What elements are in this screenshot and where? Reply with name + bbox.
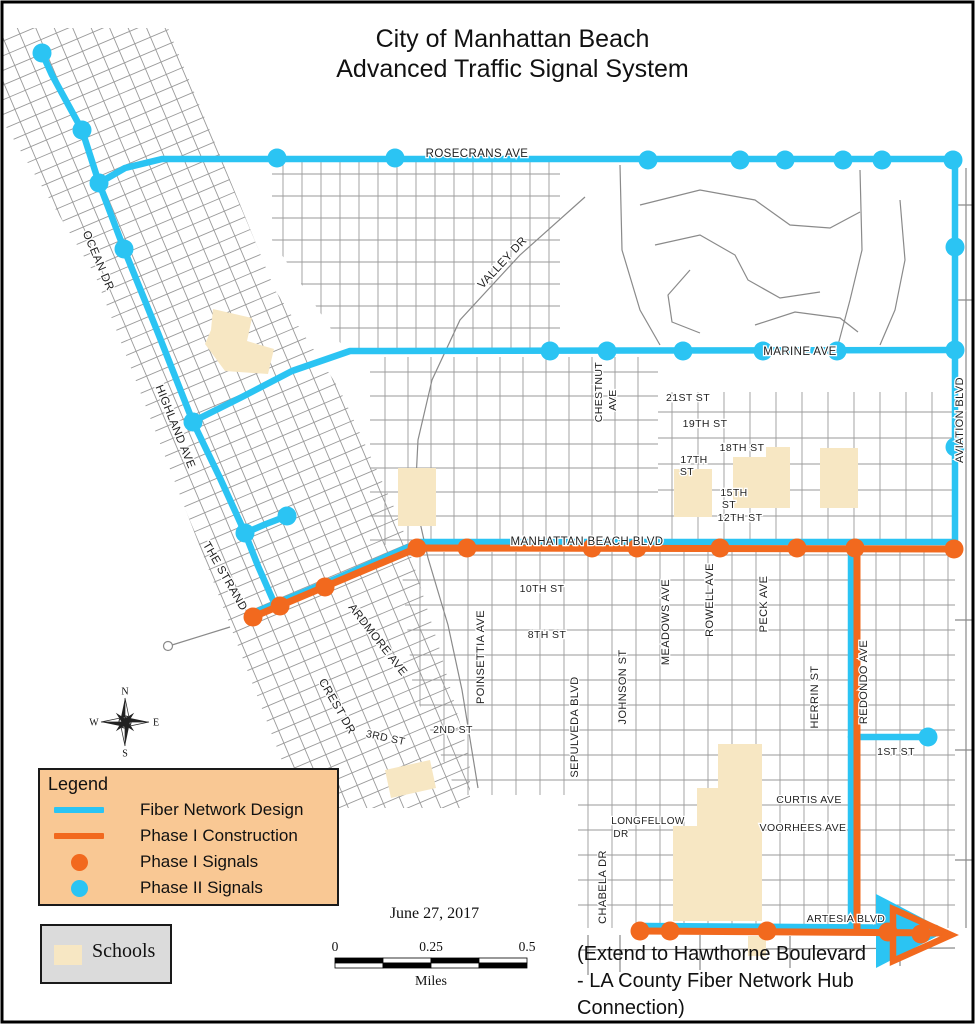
street-label: 12TH ST [718,512,763,524]
phase2-signal [184,413,203,432]
phase1-signal [846,539,865,558]
street-label: THE STRAND [200,540,249,613]
extend-note-line3: Connection) [577,995,967,1022]
map-page: ROSECRANS AVEOCEAN DRVALLEY DRMARINE AVE… [0,0,975,1024]
phase2-signal [598,342,617,361]
legend: Legend Fiber Network Design Phase I Cons… [38,768,339,906]
street-label: PECK AVE [758,576,770,633]
phase1-signal [711,539,730,558]
legend-item-fiber-network: Fiber Network Design [40,797,337,823]
school-area [385,760,436,798]
street-label: 21ST ST [666,392,710,404]
extend-note: (Extend to Hawthorne Boulevard - LA Coun… [577,941,967,1022]
phase2-signal [674,342,693,361]
phase1-signal [316,578,335,597]
street-label: CHESTNUT [593,362,605,423]
street-label: MARINE AVE [763,346,836,358]
legend-item-label: Phase I Signals [140,852,258,872]
legend-item-phase2-signals: Phase II Signals [40,875,337,901]
street-label: ROSECRANS AVE [426,148,529,160]
street-label: 15TH [720,487,747,499]
compass-letter: S [122,749,128,760]
street-label: LONGFELLOW [611,816,685,827]
phase1-line-swatch [54,833,104,839]
street-label: 3RD ST [365,728,407,748]
school-area [820,448,858,508]
scale-unit-label: Miles [415,974,447,989]
street-label: HERRIN ST [809,666,821,729]
street-label: POINSETTIA AVE [475,610,487,704]
school-area [673,744,762,921]
pier-roundhouse [164,642,173,651]
phase1-signal [458,539,477,558]
phase2-signal [90,174,109,193]
phase2-signal [946,238,965,257]
phase2-signal [946,341,965,360]
street-label: ARTESIA BLVD [807,913,886,925]
phase2-signal [776,151,795,170]
phase1-signal [788,539,807,558]
phase2-signal [731,151,750,170]
street-label: ROWELL AVE [704,563,716,637]
phase2-signal [834,151,853,170]
scale-tick-label: 0.5 [519,939,536,954]
phase2-signal [541,342,560,361]
street-label: 8TH ST [528,629,567,641]
street-label: 10TH ST [520,583,565,595]
phase1-signal [661,922,680,941]
street-label: VOORHEES AVE [760,822,847,834]
phase2-signal [278,507,297,526]
map-title-line1: City of Manhattan Beach [50,24,975,54]
street-label: AVIATION BLVD [954,377,966,463]
street-label: DR [613,829,628,840]
street-label: AVE [607,389,619,410]
phase2-signal [33,44,52,63]
phase1-signal-swatch [71,854,88,871]
street-label: ST [722,499,736,511]
scale-bar: 00.250.5Miles [332,939,536,989]
street-label: CHABELA DR [597,850,609,924]
schools-legend: Schools [40,924,172,984]
street-label: SEPULVEDA BLVD [569,676,581,777]
phase2-signal [115,240,134,259]
scale-tick-label: 0 [332,939,339,954]
compass-letter: E [153,718,159,729]
phase2-signal [873,151,892,170]
school-area [398,468,436,526]
street-label: 18TH ST [720,442,765,454]
phase1-signal [244,608,263,627]
scale-tick-label: 0.25 [419,939,443,954]
compass-letter: W [89,718,99,729]
schools-label: Schools [92,940,155,963]
school-swatch [54,945,82,965]
street-label: 2ND ST [433,724,473,736]
street-label: OCEAN DR [80,229,116,293]
street-label: JOHNSON ST [617,650,629,725]
legend-item-label: Fiber Network Design [140,800,303,820]
street-label: 1ST ST [877,746,915,758]
legend-item-phase1-construction: Phase I Construction [40,823,337,849]
street-label: 17TH [680,454,707,466]
extend-note-line1: (Extend to Hawthorne Boulevard [577,941,967,968]
legend-item-phase1-signals: Phase I Signals [40,849,337,875]
map-date: June 27, 2017 [352,905,517,923]
phase2-signal [73,121,92,140]
street-label: 19TH ST [683,418,728,430]
street-label: MANHATTAN BEACH BLVD [510,536,663,548]
phase2-signal [236,524,255,543]
street-label: REDONDO AVE [858,640,870,724]
phase1-signal [408,539,427,558]
street-label: MEADOWS AVE [660,579,672,665]
legend-item-label: Phase I Construction [140,826,298,846]
phase2-signal [268,149,287,168]
street-label: ST [680,466,694,478]
phase2-signal [639,151,658,170]
phase1-signal [631,922,650,941]
fiber-line-swatch [54,807,104,813]
legend-item-label: Phase II Signals [140,878,263,898]
map-title: City of Manhattan Beach Advanced Traffic… [50,24,975,84]
phase2-signal [386,149,405,168]
street-label: ARDMORE AVE [346,602,410,679]
phase1-signal [945,540,964,559]
compass-rose: NESW [89,687,159,760]
phase2-signal-swatch [71,880,88,897]
compass-letter: N [121,687,128,698]
street-label: CURTIS AVE [776,794,841,806]
phase1-signal [879,923,898,942]
phase1-signal [271,597,290,616]
map-title-line2: Advanced Traffic Signal System [50,54,975,84]
phase2-signal [944,151,963,170]
legend-heading: Legend [48,774,337,795]
extend-note-line2: - LA County Fiber Network Hub [577,968,967,995]
phase1-signal [758,922,777,941]
phase2-signal [919,728,938,747]
street-label: VALLEY DR [476,235,530,291]
